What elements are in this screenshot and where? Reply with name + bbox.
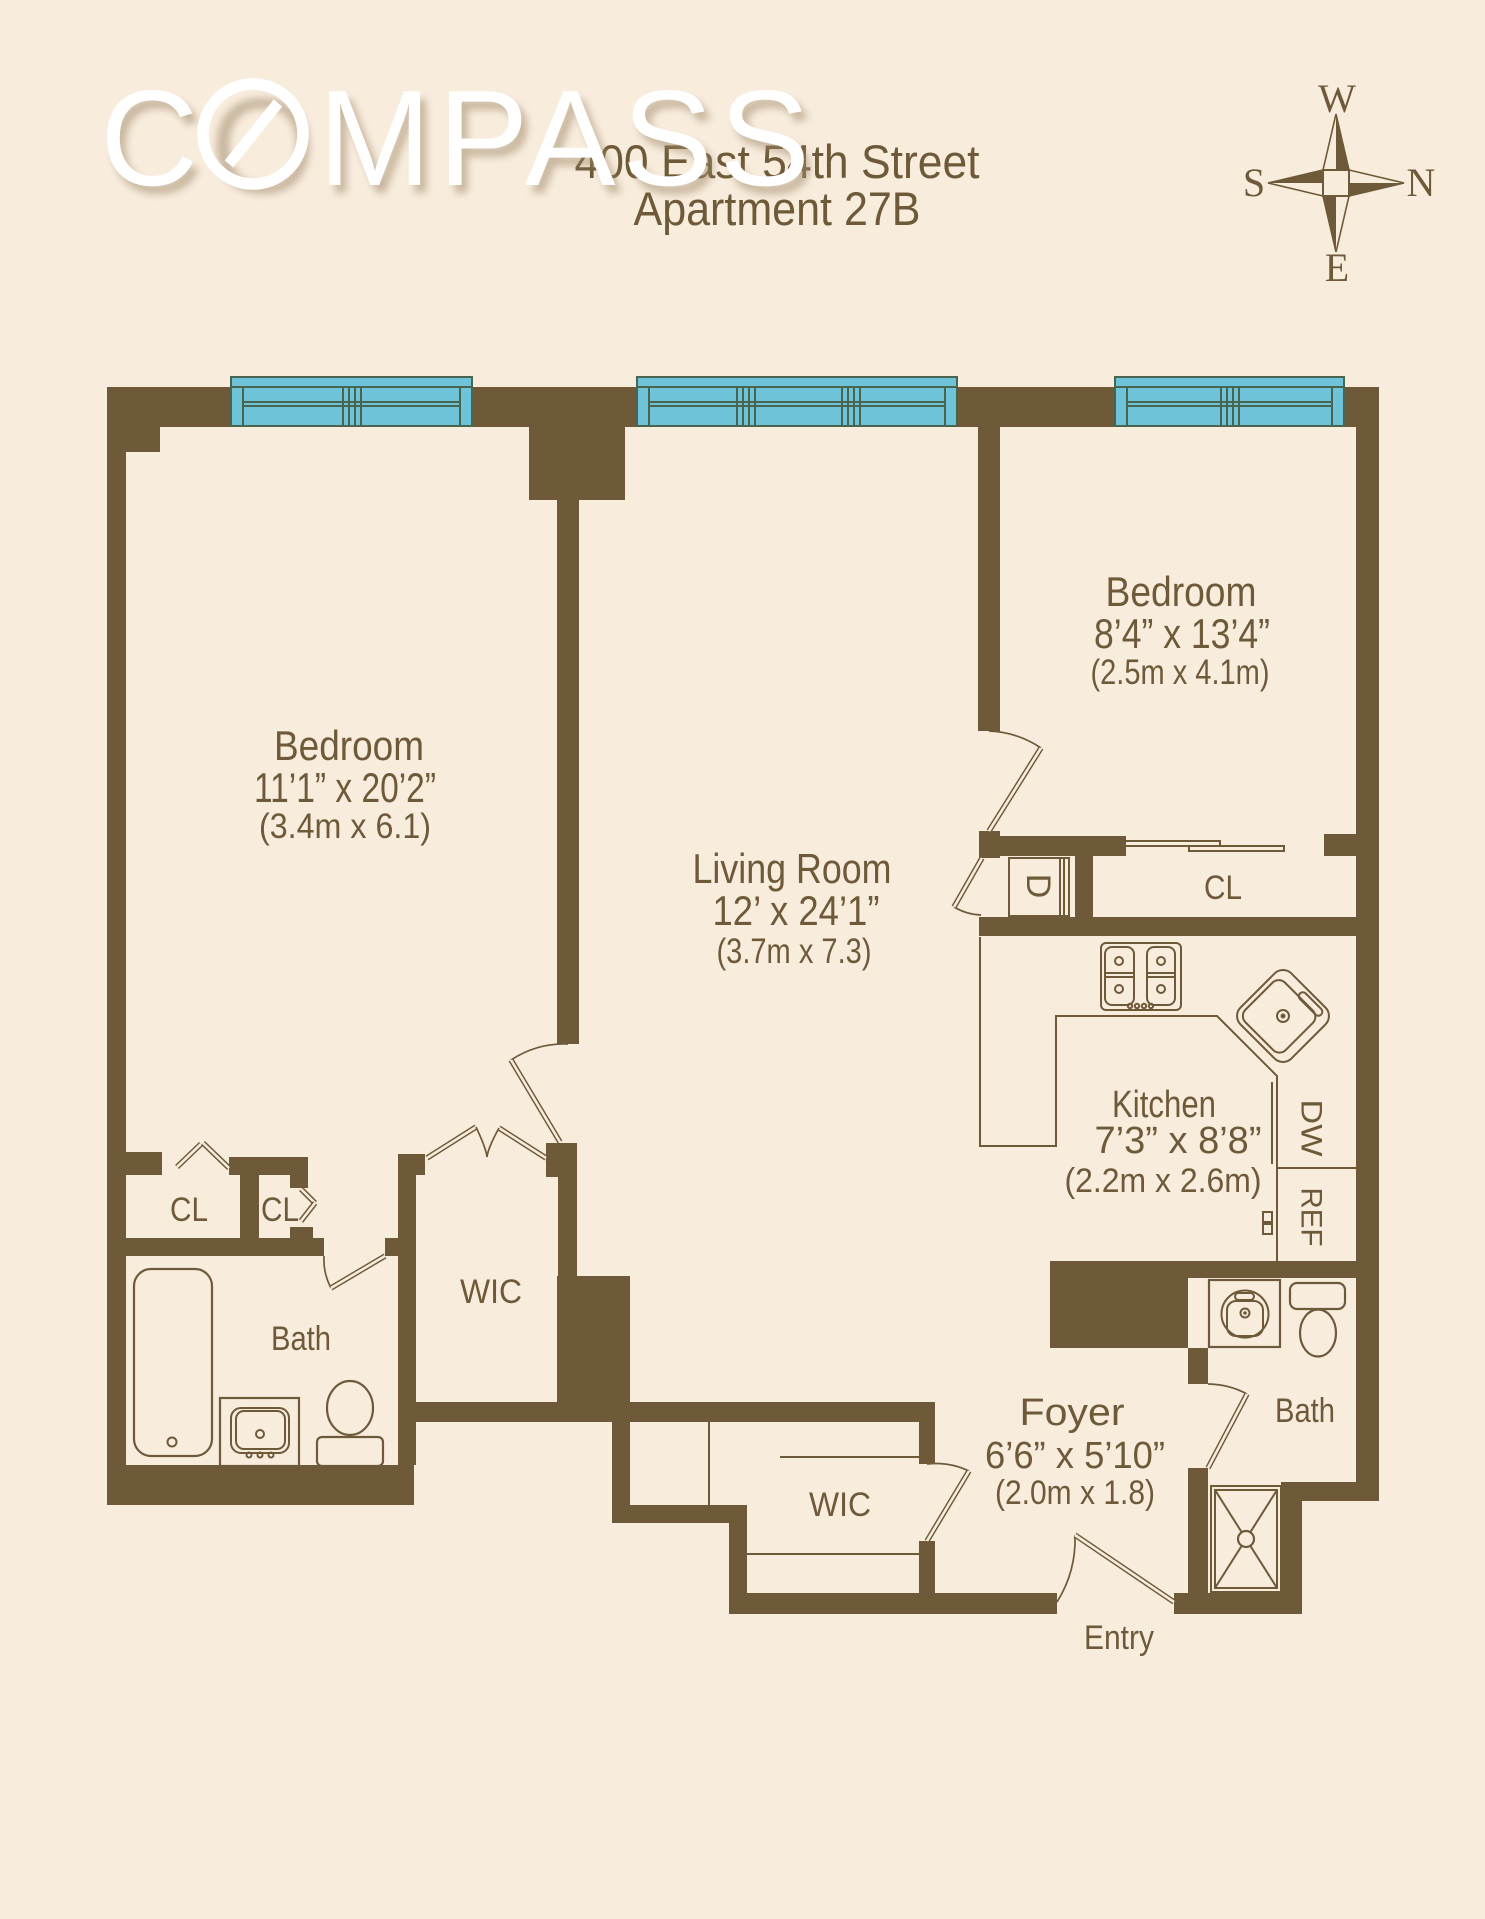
svg-text:S: S bbox=[1243, 160, 1265, 205]
svg-text:(2.0m x 1.8): (2.0m x 1.8) bbox=[995, 1474, 1155, 1512]
svg-text:DW: DW bbox=[1295, 1100, 1328, 1158]
svg-text:CL: CL bbox=[261, 1191, 299, 1229]
svg-text:11’1” x 20’2”: 11’1” x 20’2” bbox=[254, 764, 436, 811]
svg-text:12’ x 24’1”: 12’ x 24’1” bbox=[713, 887, 880, 934]
svg-text:(2.2m x 2.6m): (2.2m x 2.6m) bbox=[1065, 1162, 1262, 1200]
svg-text:(2.5m x 4.1m): (2.5m x 4.1m) bbox=[1091, 653, 1270, 692]
svg-text:REF: REF bbox=[1295, 1188, 1328, 1247]
svg-text:(3.7m x 7.3): (3.7m x 7.3) bbox=[717, 932, 872, 971]
svg-text:6’6” x 5’10”: 6’6” x 5’10” bbox=[985, 1435, 1165, 1477]
svg-text:W: W bbox=[1318, 76, 1356, 121]
svg-text:WIC: WIC bbox=[460, 1273, 522, 1311]
svg-text:N: N bbox=[1407, 160, 1436, 205]
svg-text:MPASS: MPASS bbox=[318, 62, 810, 214]
svg-text:Foyer: Foyer bbox=[1020, 1392, 1125, 1434]
svg-text:7’3” x 8’8”: 7’3” x 8’8” bbox=[1095, 1120, 1262, 1162]
svg-text:CL: CL bbox=[170, 1191, 208, 1229]
svg-text:C: C bbox=[100, 62, 198, 214]
svg-text:CL: CL bbox=[1204, 869, 1242, 907]
svg-text:E: E bbox=[1325, 245, 1349, 290]
svg-text:Living Room: Living Room bbox=[693, 845, 892, 892]
svg-text:Bath: Bath bbox=[271, 1320, 331, 1358]
svg-text:WIC: WIC bbox=[809, 1486, 871, 1524]
svg-text:D: D bbox=[1019, 874, 1057, 899]
svg-text:Entry: Entry bbox=[1084, 1619, 1154, 1657]
svg-text:Bedroom: Bedroom bbox=[274, 722, 424, 769]
svg-text:8’4” x 13’4”: 8’4” x 13’4” bbox=[1094, 610, 1270, 657]
svg-text:Bath: Bath bbox=[1275, 1392, 1335, 1430]
svg-text:Bedroom: Bedroom bbox=[1106, 568, 1257, 615]
svg-text:(3.4m x 6.1): (3.4m x 6.1) bbox=[259, 807, 431, 846]
